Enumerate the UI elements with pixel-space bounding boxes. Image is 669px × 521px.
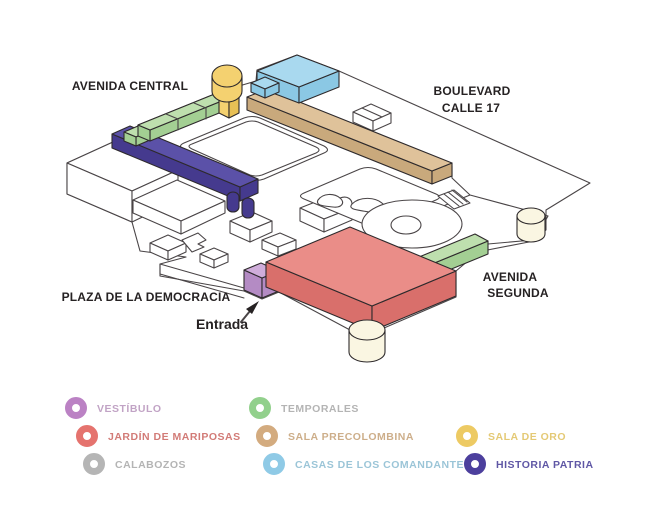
casas-swatch bbox=[267, 457, 282, 472]
oro-swatch bbox=[460, 429, 475, 444]
label-avenida-segunda-2: SEGUNDA bbox=[487, 286, 549, 300]
vestibulo-swatch bbox=[69, 401, 84, 416]
legend-item-casas: CASAS DE LOS COMANDANTES bbox=[267, 457, 472, 472]
historia-label: HISTORIA PATRIA bbox=[496, 459, 594, 471]
legend-item-temporales: TEMPORALES bbox=[253, 401, 359, 416]
oro-label: SALA DE ORO bbox=[488, 431, 566, 443]
temporales-swatch bbox=[253, 401, 268, 416]
jardin-swatch bbox=[80, 429, 95, 444]
round-plaza-inner bbox=[391, 216, 421, 234]
legend-item-oro: SALA DE ORO bbox=[460, 429, 567, 444]
east-cylinder bbox=[517, 208, 545, 242]
legend-item-vestibulo: VESTÍBULO bbox=[69, 401, 162, 416]
legend-item-historia: HISTORIA PATRIA bbox=[468, 457, 594, 472]
label-avenida-central: AVENIDA CENTRAL bbox=[72, 79, 188, 93]
legend-item-precolombina: SALA PRECOLOMBINA bbox=[260, 429, 414, 444]
oro-cylinder-top bbox=[212, 65, 242, 87]
label-plaza-democracia: PLAZA DE LA DEMOCRACIA bbox=[62, 290, 231, 304]
museum-map-page: AVENIDA CENTRAL BOULEVARD CALLE 17 AVENI… bbox=[0, 0, 669, 521]
historia-swatch bbox=[468, 457, 483, 472]
label-boulevard-2: CALLE 17 bbox=[442, 101, 500, 115]
jardin-cylinder-top bbox=[349, 320, 385, 340]
jardin-label: JARDÍN DE MARIPOSAS bbox=[108, 430, 241, 443]
precolombina-label: SALA PRECOLOMBINA bbox=[288, 431, 414, 443]
vestibulo-label: VESTÍBULO bbox=[97, 402, 162, 415]
historia-knob bbox=[242, 198, 254, 218]
museum-map-canvas: AVENIDA CENTRAL BOULEVARD CALLE 17 AVENI… bbox=[0, 0, 669, 521]
calabozos-swatch bbox=[87, 457, 102, 472]
precolombina-swatch bbox=[260, 429, 275, 444]
label-boulevard-1: BOULEVARD bbox=[434, 84, 511, 98]
legend-item-jardin: JARDÍN DE MARIPOSAS bbox=[80, 429, 241, 444]
historia-knob bbox=[227, 192, 239, 212]
label-entrada: Entrada bbox=[196, 316, 248, 332]
casas-label: CASAS DE LOS COMANDANTES bbox=[295, 459, 472, 471]
label-avenida-segunda-1: AVENIDA bbox=[483, 270, 538, 284]
legend: VESTÍBULO JARDÍN DE MARIPOSAS CALABOZOS … bbox=[69, 401, 594, 472]
east-cylinder-top bbox=[517, 208, 545, 224]
calabozos-label: CALABOZOS bbox=[115, 459, 186, 471]
legend-item-calabozos: CALABOZOS bbox=[87, 457, 187, 472]
temporales-label: TEMPORALES bbox=[281, 403, 359, 415]
